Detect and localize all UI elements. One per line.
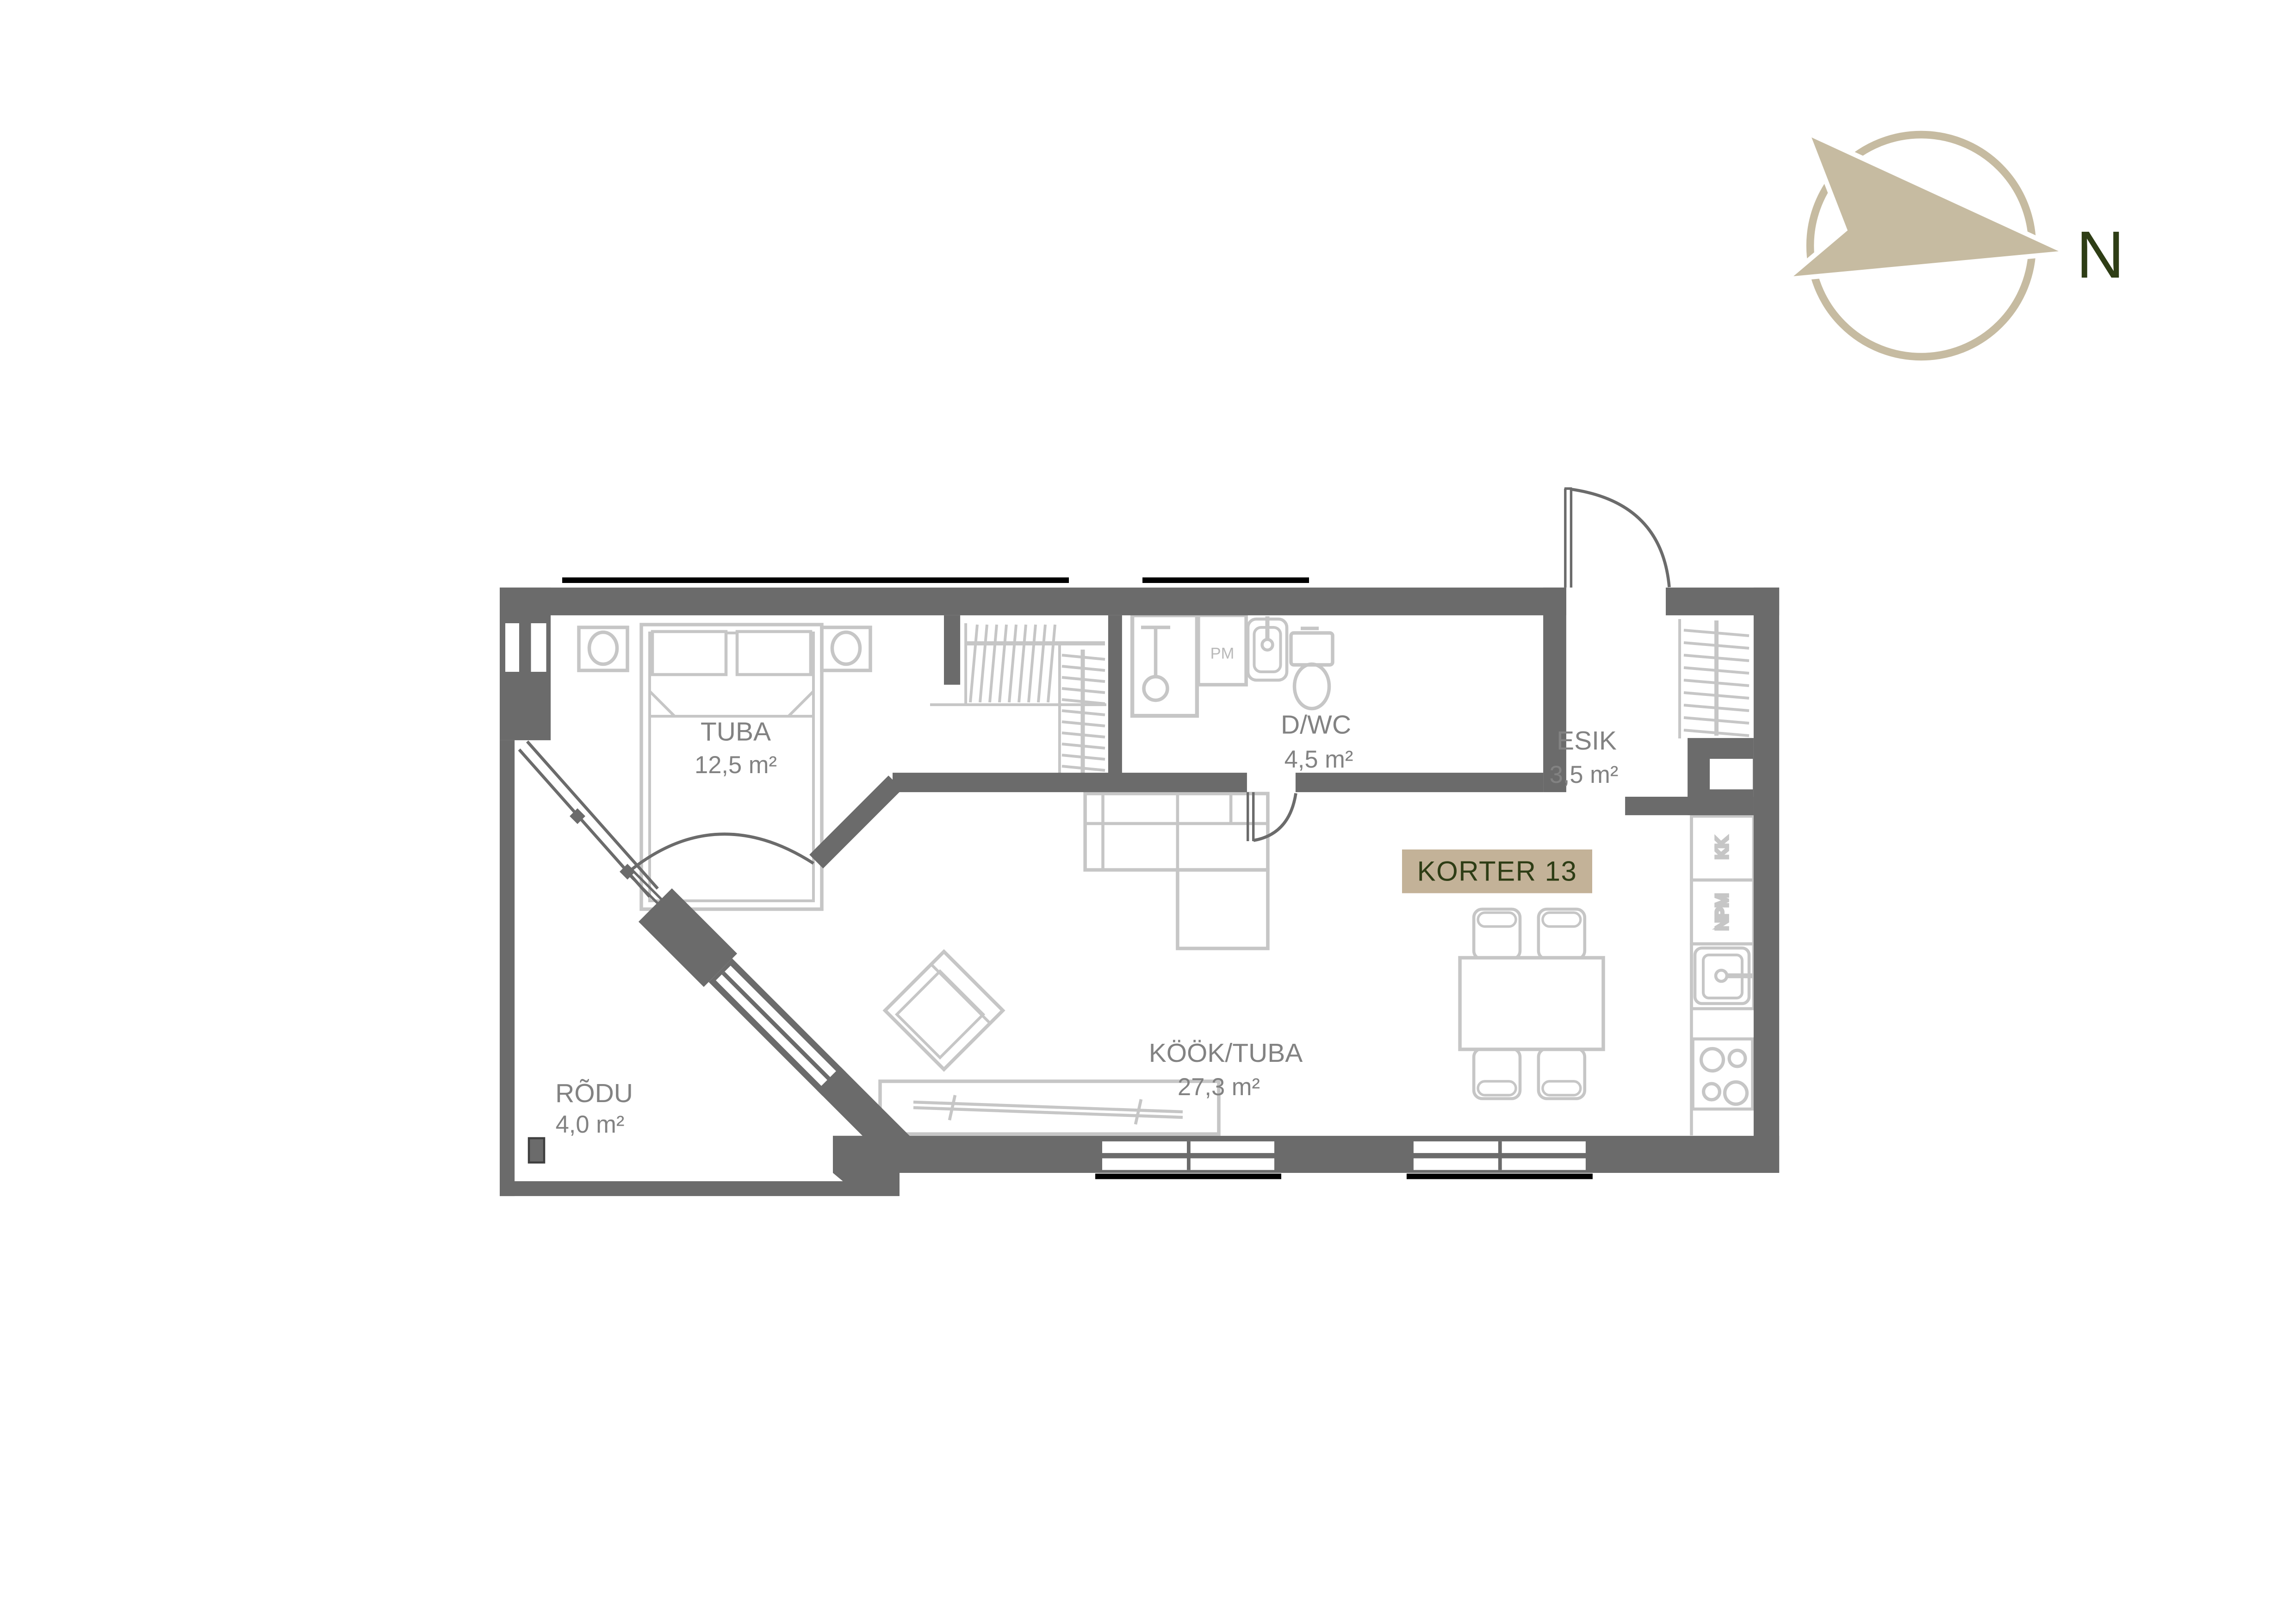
kitchen-cabinets: KK NPM <box>1692 816 1754 1135</box>
apartment-tag-label: KORTER 13 <box>1417 856 1577 887</box>
north-compass: N <box>1793 135 2124 357</box>
dining-table <box>1460 958 1603 1049</box>
closet-hatch-top <box>970 625 1055 702</box>
balcony-drain <box>529 1138 544 1163</box>
entrance-door <box>1564 489 1669 588</box>
room-area-rodu: 4,0 m² <box>556 1111 625 1138</box>
bathroom-door <box>1248 792 1296 841</box>
facade-trim <box>562 577 1309 583</box>
room-name-tuba: TUBA <box>701 717 771 747</box>
room-name-kook-tuba: KÖÖK/TUBA <box>1149 1038 1303 1068</box>
dining-set <box>1460 909 1603 1099</box>
toilet <box>1291 628 1333 708</box>
north-arrow-icon <box>1793 137 2059 276</box>
stove <box>1693 1039 1753 1110</box>
washing-machine: PM <box>1198 615 1246 685</box>
wall-interior-diagonal <box>816 782 895 862</box>
room-area-esik: 3,5 m² <box>1550 761 1619 788</box>
washing-machine-label: PM <box>1210 645 1235 663</box>
diagonal-window <box>720 970 834 1084</box>
wardrobe-hatch <box>1684 630 1749 736</box>
balcony-wall-bottom <box>500 1181 861 1196</box>
entry-wardrobe <box>1680 619 1749 738</box>
bathroom-fixtures: PM <box>1132 615 1333 716</box>
wall-left-with-window <box>500 588 551 740</box>
shower <box>1132 615 1197 716</box>
armchair <box>885 952 1003 1070</box>
room-name-dwc: D/WC <box>1281 710 1351 740</box>
wall-entry-kitchen-L <box>1625 738 1754 815</box>
floor-plan-canvas: PM <box>0 0 2296 1624</box>
room-name-rodu: RÕDU <box>555 1079 633 1108</box>
tv <box>913 1095 1183 1124</box>
room-area-kook-tuba: 27,3 m² <box>1178 1073 1260 1101</box>
tv-bench <box>880 1081 1219 1134</box>
bathroom-sink <box>1248 616 1287 680</box>
wall-right <box>1754 588 1779 1173</box>
dishwasher-label: NPM <box>1713 893 1731 930</box>
wall-diagonal-block <box>655 905 720 970</box>
wall-top <box>500 588 1566 615</box>
wall-bottom-with-windows <box>833 1136 1779 1179</box>
corner-sofa <box>1085 793 1268 948</box>
room-area-dwc: 4,5 m² <box>1285 746 1353 773</box>
fridge-label: KK <box>1713 837 1731 859</box>
kitchen-sink <box>1695 948 1753 1004</box>
wall-living-top-left <box>893 773 1247 792</box>
room-area-tuba: 12,5 m² <box>695 751 777 779</box>
wall-bedroom-stub <box>944 615 960 685</box>
balcony-wall-left <box>500 740 515 1196</box>
apartment-tag: KORTER 13 <box>1402 849 1592 893</box>
wall-closet-bath <box>1108 615 1122 780</box>
room-name-esik: ESIK <box>1557 726 1617 756</box>
nightstand-left <box>579 627 627 670</box>
compass-north-label: N <box>2076 217 2124 292</box>
nightstand-right <box>822 627 870 670</box>
wall-living-top-right <box>1296 773 1543 792</box>
